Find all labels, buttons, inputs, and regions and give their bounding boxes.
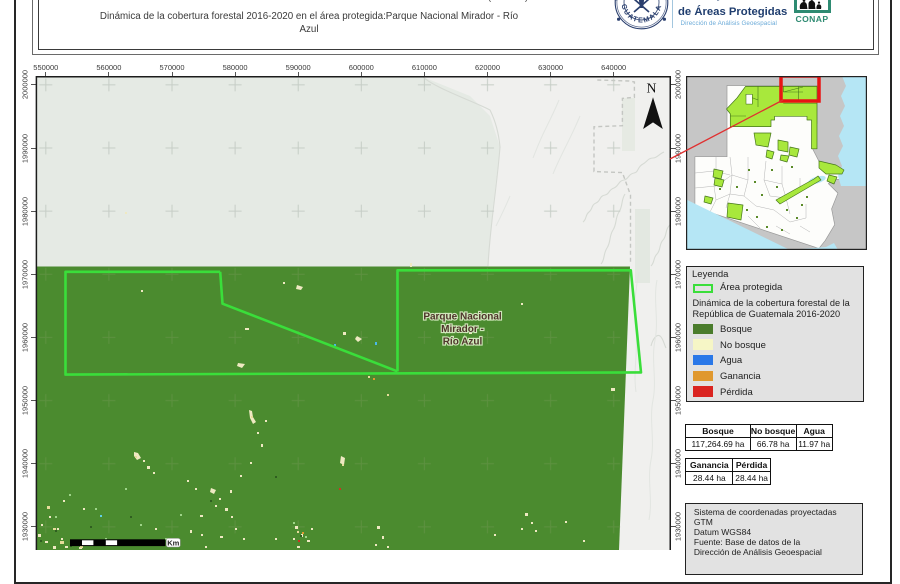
svg-text:Km: Km xyxy=(167,538,179,547)
svg-text:N: N xyxy=(647,80,657,95)
svg-text:Mirador -: Mirador - xyxy=(441,324,484,335)
svg-text:Río Azul: Río Azul xyxy=(443,336,483,347)
svg-text:Parque Nacional: Parque Nacional xyxy=(423,312,502,323)
